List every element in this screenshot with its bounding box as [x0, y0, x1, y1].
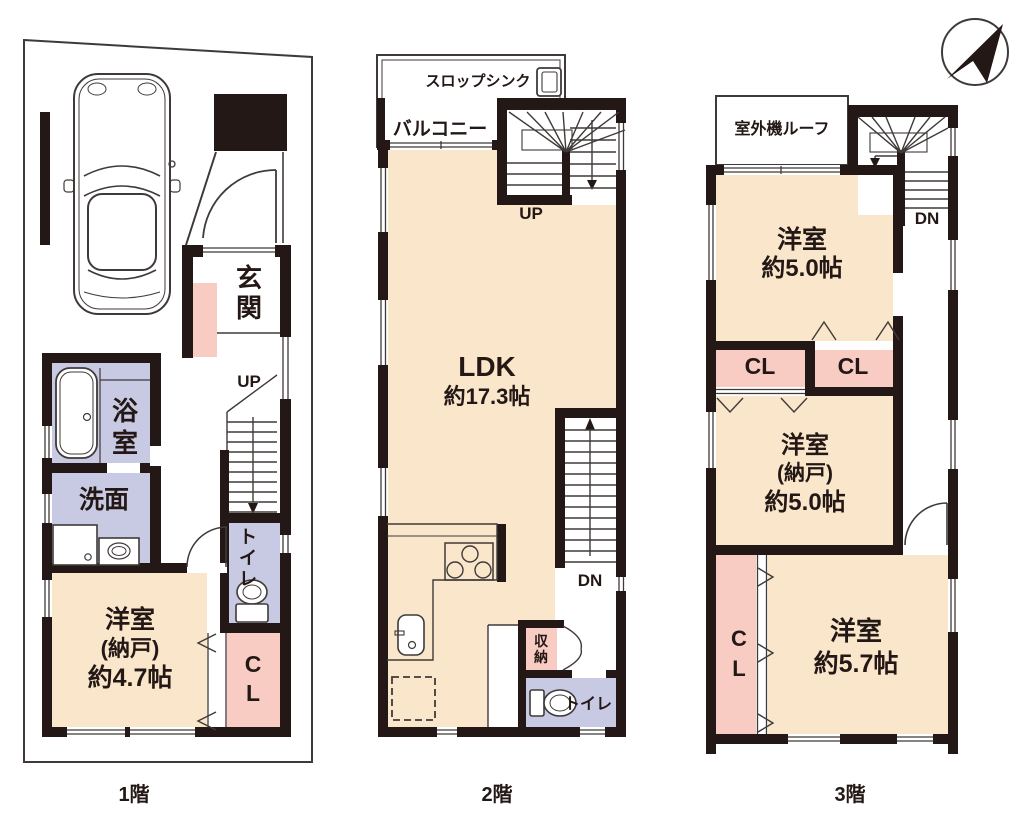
label-room2-2: (納戸) [777, 461, 833, 485]
floorplan-page: 玄関 UP 浴室 洗面 トイレ CL 洋室 (納戸) 約4.7帖 [0, 0, 1024, 813]
label-storage: 収納 [534, 633, 549, 665]
floor-2-plan: スロップシンク バルコニー UP LDK 約17.3帖 DN 収納 トイレ [377, 55, 626, 737]
label-slop-sink: スロップシンク [425, 73, 530, 90]
label-closet2: CL [838, 353, 869, 379]
floor-1-plan: 玄関 UP 浴室 洗面 トイレ CL 洋室 (納戸) 約4.7帖 [24, 40, 312, 762]
label-ldk-2: 約17.3帖 [444, 384, 531, 409]
label-balcony: バルコニー [393, 118, 488, 140]
label-room2-3: 約5.0帖 [764, 488, 845, 516]
slop-sink-icon [537, 68, 561, 96]
label-room1-2: 約5.0帖 [761, 254, 842, 282]
car-icon [64, 74, 180, 314]
label-room2-1: 洋室 [781, 431, 829, 459]
label-washroom: 洗面 [79, 486, 129, 514]
label-closet1: CL [745, 353, 776, 379]
label-room3-2: 約5.7帖 [814, 649, 899, 678]
label-outdoor-unit-roof: 室外機ルーフ [734, 119, 829, 138]
north-arrow-icon [942, 19, 1008, 85]
label-room-f1-3: 約4.7帖 [88, 663, 173, 692]
floor-1-label: 1階 [118, 783, 149, 806]
kitchen-sink-icon [395, 615, 424, 655]
floor-3-label: 3階 [834, 783, 865, 806]
label-toilet-f1: トイレ [239, 527, 257, 589]
label-entrance: 玄関 [236, 263, 262, 323]
room3-door-arc [905, 503, 947, 545]
label-toilet-f2: トイレ [564, 696, 612, 713]
vanity-sink-icon [99, 538, 139, 565]
label-room-f1-2: (納戸) [101, 636, 160, 661]
washer-icon [53, 525, 97, 565]
label-room1-1: 洋室 [777, 225, 827, 254]
floor-2-label: 2階 [481, 783, 512, 806]
label-dn-f2: DN [578, 571, 603, 590]
floorplan-canvas: 玄関 UP 浴室 洗面 トイレ CL 洋室 (納戸) 約4.7帖 [0, 0, 1024, 813]
label-room-f1-1: 洋室 [105, 605, 155, 634]
label-room3-1: 洋室 [830, 616, 882, 646]
label-dn-f3: DN [915, 209, 940, 228]
floor-labels: 1階 2階 3階 [118, 783, 865, 806]
label-ldk-1: LDK [458, 351, 516, 382]
floor-3-plan: 室外機ルーフ DN 洋室 約5.0帖 CL CL 洋室 (納戸) 約5.0帖 C… [706, 96, 958, 754]
label-up-f2: UP [519, 204, 543, 223]
label-up-f1: UP [237, 372, 261, 391]
